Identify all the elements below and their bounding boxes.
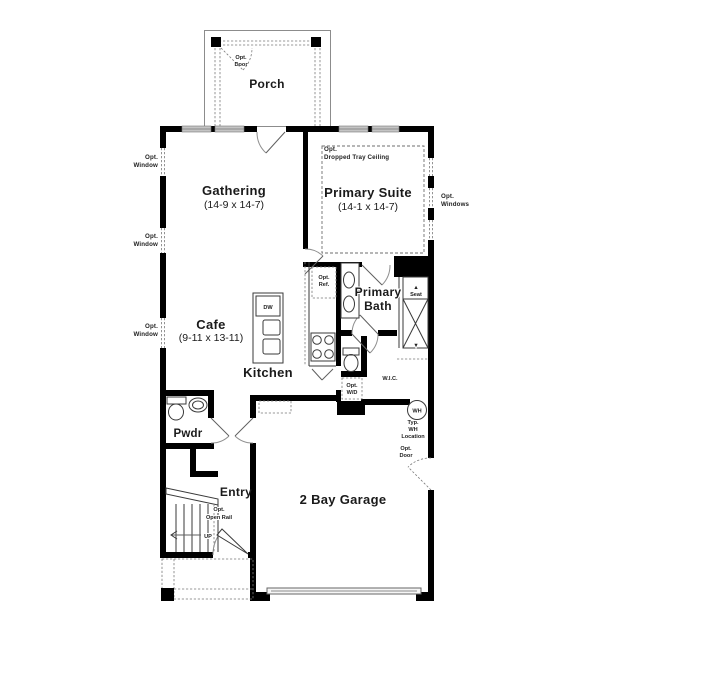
porch-post — [311, 37, 321, 47]
tray-ceiling-label: Dropped Tray Ceiling — [324, 154, 389, 161]
garage-door — [267, 588, 421, 594]
room-label-wic: W.I.C. — [382, 376, 398, 382]
room-label-primary-suite: Primary Suite — [324, 185, 412, 200]
room-label-primary-bath: Primary — [355, 285, 402, 299]
opt-ref-label: Opt. — [318, 275, 330, 281]
wh-label: WH — [412, 409, 421, 415]
room-label-pwdr: Pwdr — [174, 428, 203, 440]
up-label: UP — [204, 534, 212, 540]
toilet — [343, 348, 359, 372]
island: DW — [253, 293, 283, 363]
opt-wd-label: W/D — [347, 390, 358, 396]
opt-window-label: Opt. — [145, 323, 158, 330]
garage-top-wall — [256, 395, 341, 401]
room-dims-primary-suite: (14-1 x 14-7) — [338, 201, 398, 213]
opt-wd-label: Opt. — [346, 383, 358, 389]
opt-door-label: Opt. — [235, 55, 247, 61]
room-label-porch: Porch — [249, 77, 285, 91]
stair-rail-wedge — [166, 488, 218, 505]
tray-ceiling-label: Opt. — [324, 146, 337, 153]
wic-wall-stub — [337, 401, 365, 415]
pwdr-detail — [167, 397, 207, 420]
room-dims-gathering: (14-9 x 14-7) — [204, 199, 264, 211]
toilet — [167, 397, 186, 420]
stoop-post — [161, 588, 174, 601]
opt-washer-dryer: Opt. W/D — [342, 378, 362, 399]
opt-window-label: Opt. — [145, 154, 158, 161]
primary-bath-detail: ▲ Seat ▼ — [341, 263, 428, 372]
opt-window-label: Window — [133, 331, 158, 338]
porch-post — [211, 37, 221, 47]
gathering-suite-wall — [303, 126, 308, 249]
room-label-gathering: Gathering — [202, 183, 266, 198]
sink-basin — [263, 320, 280, 335]
opt-windows-label: Opt. — [441, 193, 454, 200]
opt-window-label: Window — [133, 241, 158, 248]
porch-opt-door: Opt. Door — [221, 48, 252, 70]
room-label-cafe: Cafe — [196, 317, 225, 332]
shower: ▲ Seat ▼ — [399, 277, 428, 349]
wic-bottom-wall — [361, 399, 410, 405]
seat-marker-down: ▼ — [413, 343, 419, 349]
floor-plan-page: Opt. Door Porch — [0, 0, 727, 677]
water-heater: WH Typ. WH Location — [401, 401, 426, 441]
wh-location-label: Location — [401, 434, 425, 440]
opt-door-label: Door — [234, 62, 248, 68]
cooktop — [311, 333, 335, 361]
dw-label: DW — [263, 305, 273, 311]
opt-windows-label: Windows — [441, 201, 470, 208]
opt-fridge: Opt. Ref. — [312, 267, 336, 298]
room-label-primary-bath: Bath — [364, 299, 392, 313]
open-rail-label: Open Rail — [206, 515, 233, 521]
opt-window-label: Opt. — [145, 233, 158, 240]
porch: Opt. Door Porch — [205, 31, 331, 127]
wh-location-label: Typ. — [407, 420, 419, 426]
sink-basin — [263, 339, 280, 354]
front-stoop — [161, 559, 253, 601]
pwdr-top-wall — [160, 390, 214, 396]
room-label-entry: Entry — [220, 485, 252, 499]
opt-ref-label: Ref. — [319, 282, 330, 288]
room-label-kitchen: Kitchen — [243, 365, 293, 380]
room-dims-cafe: (9-11 x 13-11) — [179, 332, 243, 344]
garage-opt-door — [408, 458, 431, 490]
callouts: Opt. Window Opt. Window Opt. Window Opt.… — [133, 154, 469, 338]
stair-treads — [176, 504, 218, 552]
kitchen-detail: Opt. Ref. DW — [253, 262, 336, 366]
seat-marker-up: ▲ — [413, 285, 419, 291]
kitchen-bath-wall — [336, 262, 341, 366]
pedestal-sink — [189, 398, 207, 412]
open-rail-label: Opt. — [213, 507, 225, 513]
garage-opt-door-label: Door — [399, 453, 413, 459]
front-door-leaf — [217, 529, 248, 554]
seat-label: Seat — [410, 292, 422, 298]
opt-window-label: Window — [133, 162, 158, 169]
storage-outline — [259, 401, 291, 413]
shower-head-wall — [394, 256, 434, 277]
right-opt-windows — [430, 158, 433, 240]
room-label-garage: 2 Bay Garage — [300, 492, 387, 507]
floor-plan-drawing: Opt. Door Porch — [0, 0, 727, 677]
garage-opt-door-label: Opt. — [400, 446, 412, 452]
wh-location-label: WH — [408, 427, 417, 433]
